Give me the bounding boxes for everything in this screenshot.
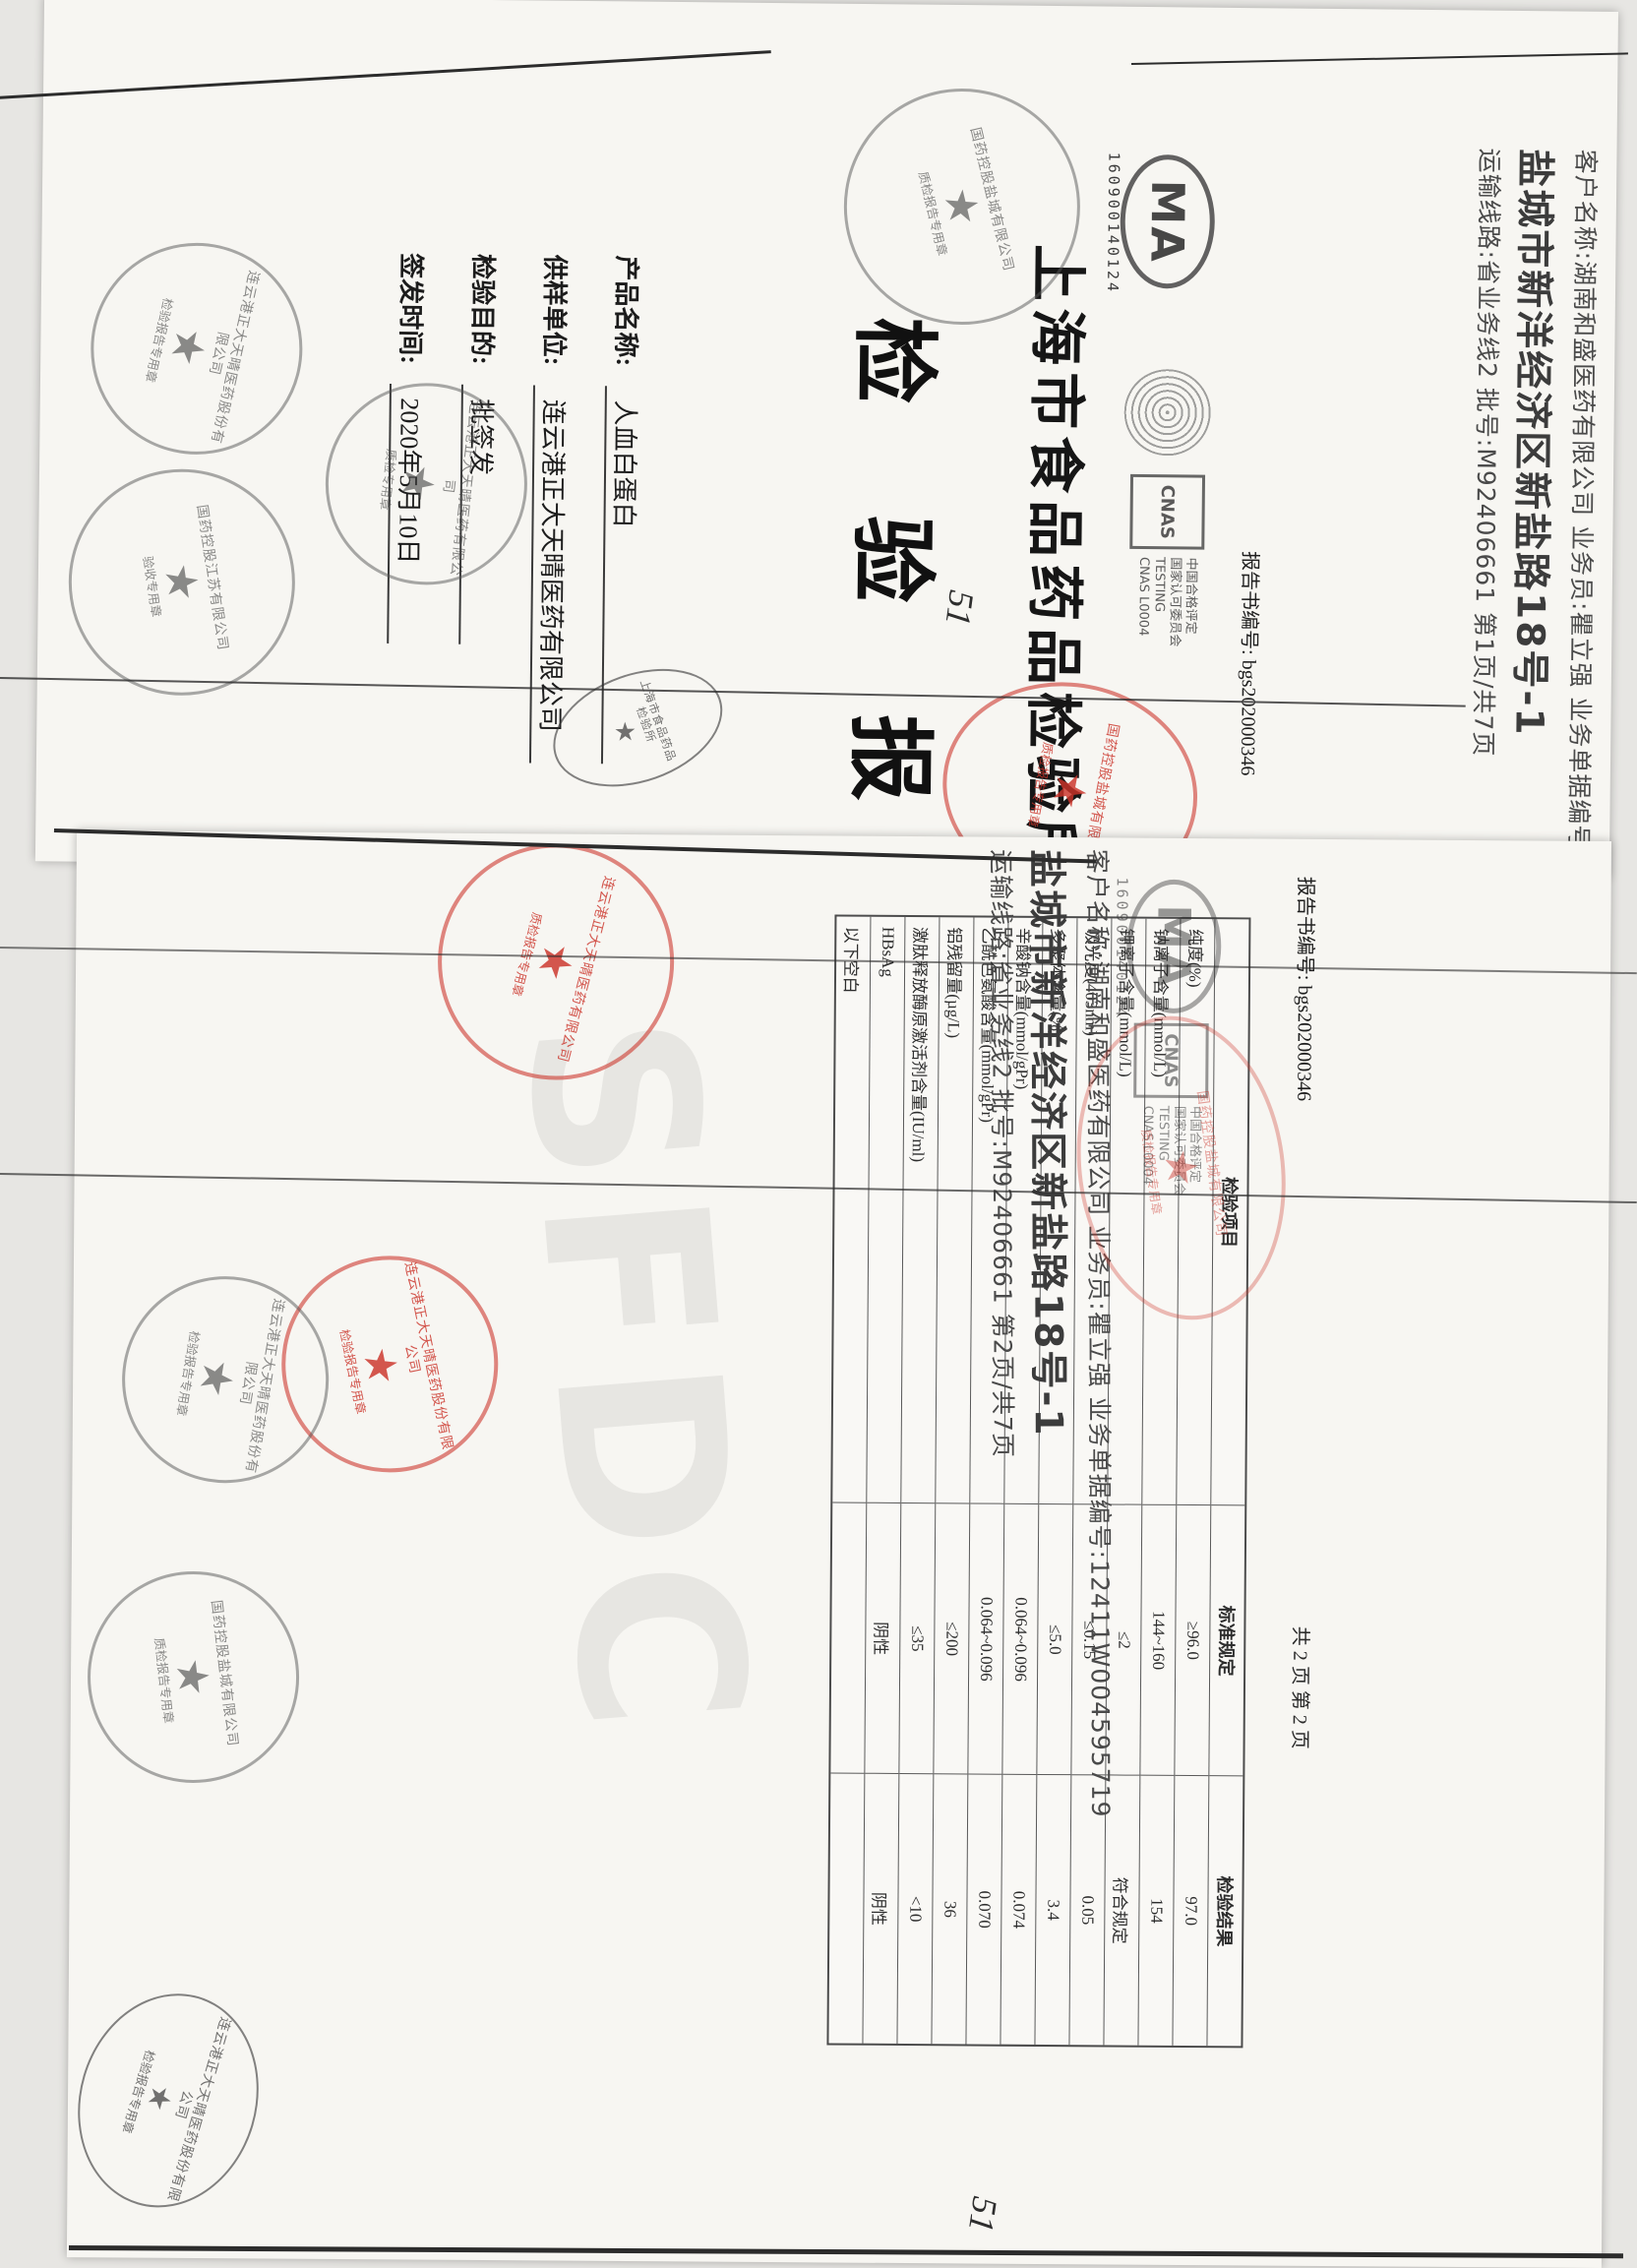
report-number-line: 报告书编号: bgs202000346 [1292, 877, 1322, 1102]
inspection-swirl-logo [1123, 369, 1211, 457]
star-icon: ★ [1043, 766, 1095, 813]
cell-standard: 阴性 [865, 1502, 900, 1773]
shipping-label: 客户名称:湖南和盛医药有限公司 业务员:瞿立强 业务单据编号:12411W004… [985, 849, 1120, 1818]
cell-result: <10 [897, 1773, 933, 2044]
stamp-bottom-text: 质检专用章 [377, 448, 397, 511]
page-count-line: 共 2 页 第 2 页 [1288, 1626, 1317, 1749]
cell-result: 154 [1138, 1775, 1174, 2046]
cnas-text: 中国合格评定 国家认可委员会 TESTING CNAS L0004 [1134, 557, 1199, 647]
cnas-line3: TESTING [1150, 557, 1167, 646]
cell-result: 97.0 [1173, 1775, 1208, 2046]
barcode-number: 160900140124 [1104, 153, 1123, 295]
cma-logo: MA [1126, 880, 1222, 1014]
cell-item: 以下空白 [832, 917, 870, 1503]
cma-mark-text: MA [1140, 179, 1194, 264]
handwritten-note: 51 [937, 587, 982, 628]
header-standard: 标准规定 [1209, 1505, 1244, 1776]
cell-item: HBsAg [867, 917, 904, 1503]
report-page-1: 客户名称:湖南和盛医药有限公司 业务员:瞿立强 业务单据编号:12411W004… [35, 0, 1618, 878]
cell-result: 36 [932, 1773, 967, 2044]
stamp-lianyungang-gray-1: 连云港正大天晴医药股份有限公司 ★ 检验报告专用章 [70, 222, 323, 475]
field-value: 连云港正大天晴医药有限公司 [529, 386, 574, 764]
cell-result [828, 1773, 864, 2044]
cma-mark-text: MA [1147, 904, 1201, 989]
star-icon: ★ [167, 1655, 216, 1699]
cnas-line1: 中国合格评定 [1182, 557, 1198, 646]
star-icon: ★ [190, 1355, 241, 1400]
cell-item: 铝残留量(µg/L) [936, 917, 973, 1503]
field-label: 供样单位: [539, 255, 569, 366]
header-result: 检验结果 [1207, 1775, 1243, 2046]
field-label: 产品名称: [611, 255, 640, 366]
cell-result: 阴性 [863, 1773, 898, 2044]
scanned-document: { "page1": { "shipping": { "line1": "客户名… [0, 0, 1637, 2267]
field-label: 签发时间: [395, 253, 425, 364]
star-icon: ★ [155, 560, 206, 605]
star-icon: ★ [392, 460, 441, 505]
cell-standard: ≥96.0 [1175, 1504, 1210, 1775]
cnas-mark: CNAS [1129, 474, 1205, 550]
cnas-logo: CNAS 中国合格评定 国家认可委员会 TESTING CNAS L0004 [1128, 474, 1205, 647]
report-number-value: bgs202000346 [1237, 660, 1259, 776]
star-icon: ★ [609, 717, 641, 748]
cnas-line4: CNAS L0004 [1134, 557, 1151, 646]
handwritten-note: 51 [960, 2194, 1006, 2236]
cnas-line2: 国家认可委员会 [1166, 557, 1182, 646]
barcode-number: 160900140124 [1113, 877, 1131, 1018]
star-icon: ★ [1155, 1146, 1205, 1191]
cma-logo: MA [1120, 154, 1215, 289]
report-number-line: 报告书编号: bgs202000346 [1236, 551, 1266, 776]
cell-standard [830, 1502, 866, 1773]
field-label: 检验目的: [467, 254, 497, 365]
stamp-guoyao-gray: 国药控股盐城有限公司 ★ 质检报告专用章 [76, 1560, 310, 1794]
report-number-label: 报告书编号: [1238, 551, 1260, 655]
report-page-2: SFDC 报告书编号: bgs202000346 共 2 页 第 2 页 检验项… [67, 830, 1611, 2268]
cell-standard: ≤200 [934, 1503, 969, 1774]
stamp-guoyao-jiangsu-gray: 国药控股江苏有限公司 ★ 验收专用章 [53, 454, 310, 710]
shipping-address: 盐城市新洋经济区新盐路18号-1 [1022, 849, 1080, 1818]
star-icon: ★ [160, 323, 213, 371]
watermark: SFDC [475, 1008, 795, 1753]
cell-standard: 144~160 [1140, 1504, 1176, 1775]
cell-item: 激肽释放酶原激活剂含量(IU/ml) [901, 917, 939, 1503]
shipping-route-line: 运输线路:省业务线2 批号:M92406661 第2页/共7页 [985, 849, 1023, 1818]
stamp-lianyungang-gray-2: 连云港正大天晴医药有限公司 ★ 质检专用章 [315, 372, 538, 595]
cell-standard: ≤35 [899, 1502, 935, 1773]
star-icon: ★ [354, 1342, 406, 1389]
stamp-lianyungang-black: 连云港正大天晴医药股份有限公司 ★ 检验报告专用章 [53, 1972, 284, 2230]
